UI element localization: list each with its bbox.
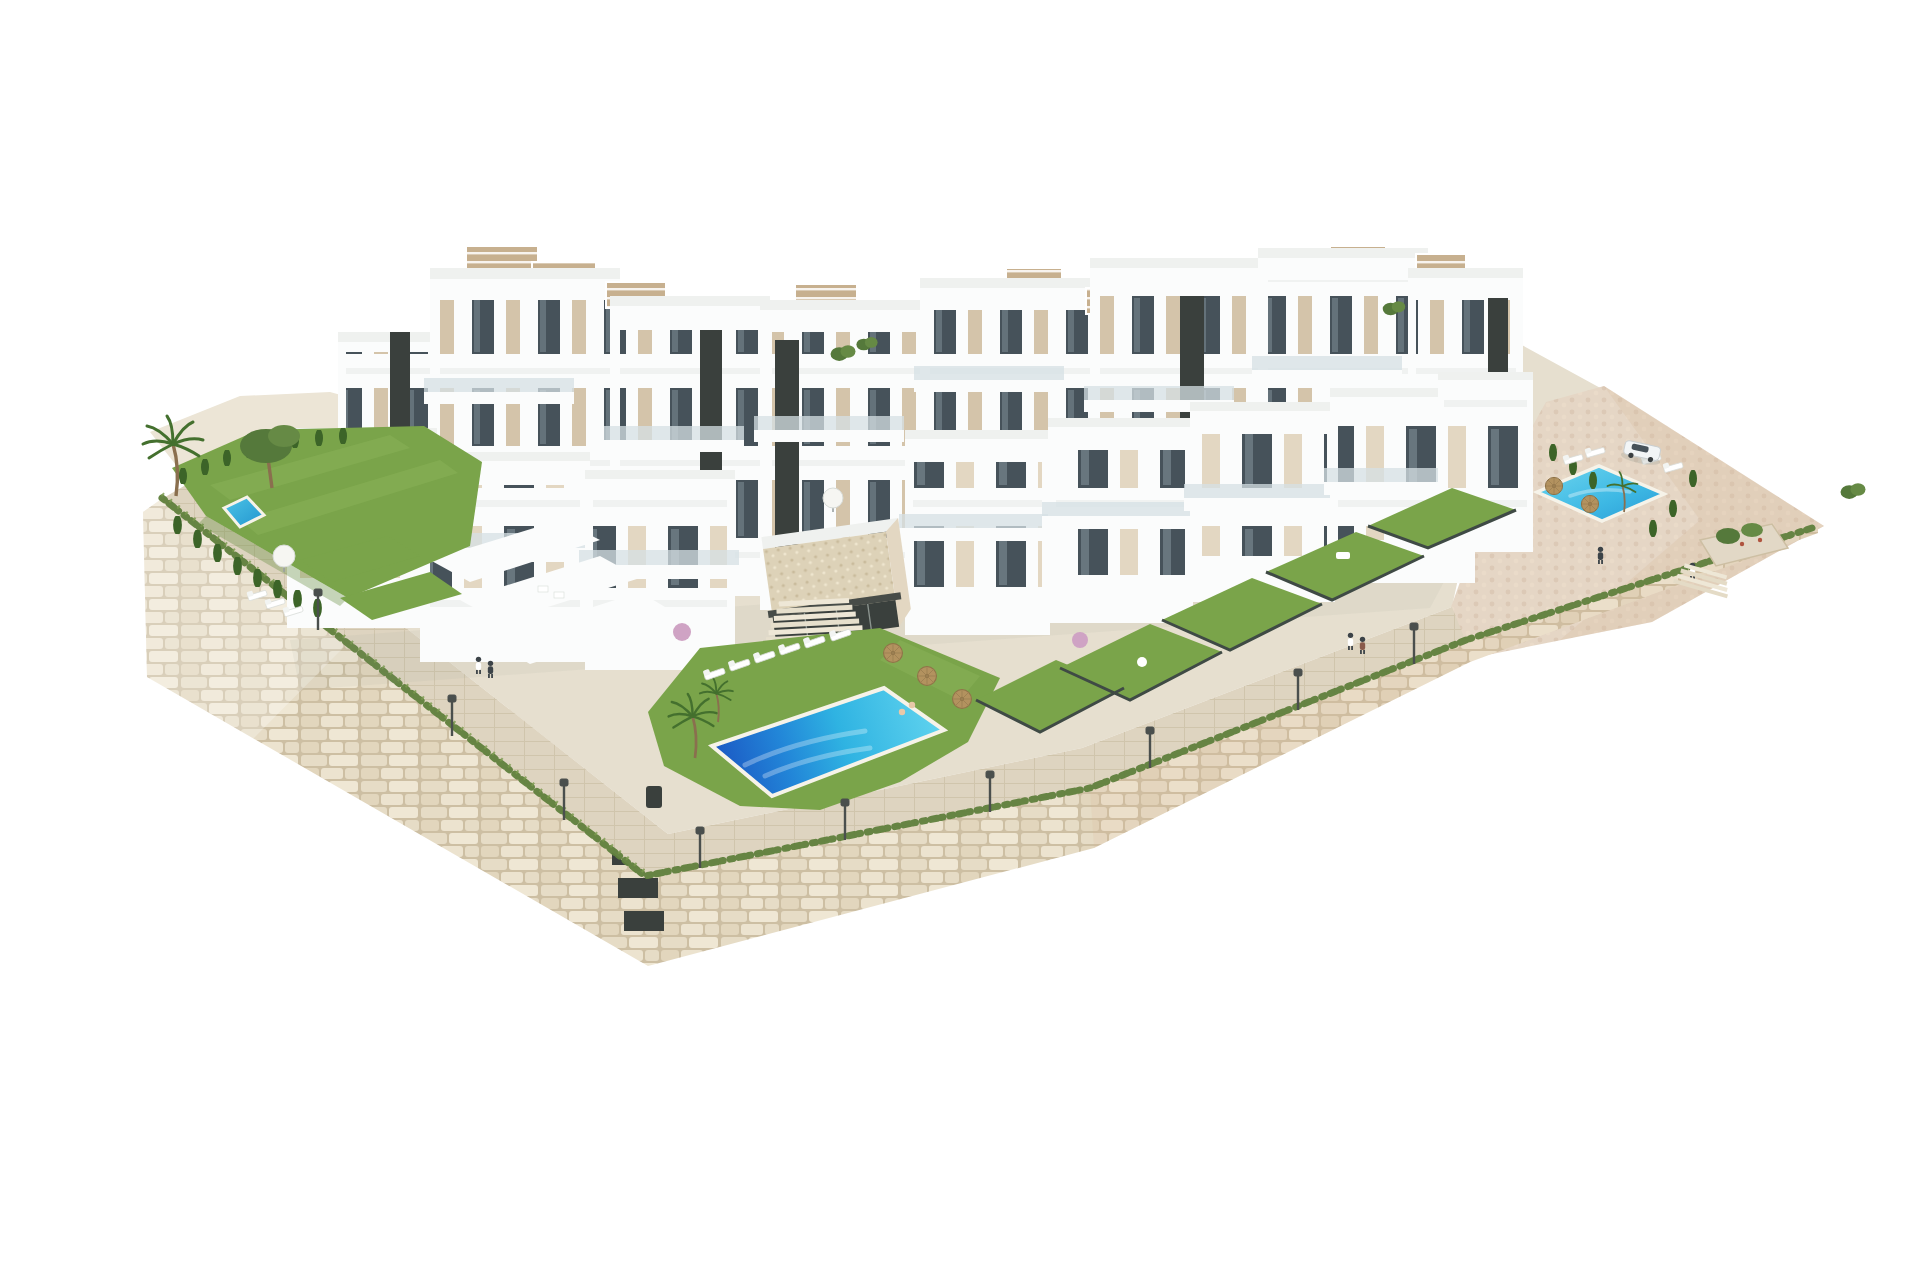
glass-balustrade: [899, 514, 1054, 528]
outdoor-sofa: [554, 592, 564, 598]
render-canvas: [0, 0, 1920, 1280]
glass-balustrade: [604, 426, 744, 440]
cypress-tree: [339, 427, 347, 445]
straw-umbrella: [953, 690, 972, 709]
cypress-tree: [201, 458, 209, 476]
glass-balustrade: [1042, 502, 1197, 516]
cypress-tree: [273, 579, 282, 599]
garden-table: [1137, 657, 1147, 667]
cypress-tree: [179, 467, 187, 485]
glass-balustrade: [424, 378, 574, 392]
complex-render: [0, 0, 1920, 1280]
cypress-tree: [1669, 500, 1677, 518]
cypress-tree: [233, 556, 242, 576]
straw-umbrella: [1581, 495, 1598, 512]
glass-balustrade: [754, 416, 904, 430]
cypress-tree: [1549, 444, 1557, 462]
straw-umbrella: [1545, 477, 1562, 494]
glass-balustrade: [914, 366, 1064, 380]
cypress-tree: [253, 568, 262, 588]
red-flowers: [1758, 538, 1762, 542]
balcony-slab: [899, 528, 1054, 541]
balcony-slab: [1184, 498, 1339, 511]
cypress-tree: [193, 529, 202, 549]
cypress-tree: [1689, 470, 1697, 488]
balcony-slab: [754, 430, 904, 442]
straw-umbrella: [884, 644, 903, 663]
garden-sofa: [1336, 552, 1350, 559]
wall-arch-opening: [646, 786, 662, 808]
glass-balustrade: [1184, 484, 1339, 498]
balcony-slab: [914, 380, 1064, 392]
flowering-shrub: [1072, 632, 1088, 648]
stair-core: [700, 330, 722, 480]
cypress-tree: [213, 543, 222, 563]
balcony-slab: [1042, 516, 1197, 529]
cypress-tree: [173, 515, 182, 535]
balcony-slab: [604, 440, 744, 452]
flowering-shrub: [673, 623, 691, 641]
wall-stair-slot: [624, 911, 664, 931]
cypress-tree: [1589, 472, 1597, 490]
swimmer: [909, 702, 915, 708]
stair-core: [775, 340, 799, 550]
villa-5: [1042, 418, 1197, 623]
outdoor-sofa: [538, 586, 548, 592]
villa-4: [899, 430, 1054, 635]
cypress-tree: [223, 449, 231, 467]
cypress-tree: [293, 589, 302, 609]
cypress-tree: [1649, 520, 1657, 538]
balcony-slab: [424, 392, 574, 404]
cypress-tree: [315, 429, 323, 447]
swimmer: [899, 709, 905, 715]
glass-balustrade: [1252, 356, 1402, 370]
balcony-slab: [1252, 370, 1402, 382]
glass-balustrade: [1084, 386, 1234, 400]
red-flowers: [1740, 542, 1744, 546]
wall-stair-slot: [618, 878, 658, 898]
straw-umbrella: [918, 667, 937, 686]
